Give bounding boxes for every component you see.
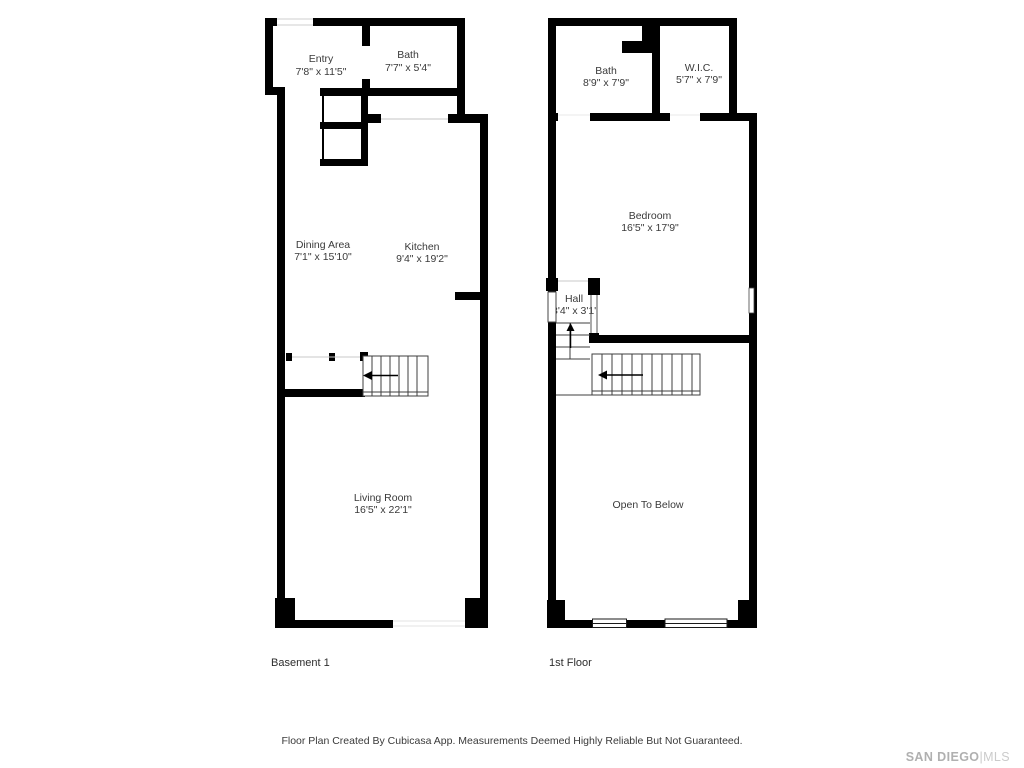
first-floor-stairs <box>556 323 700 395</box>
basement-walls <box>265 18 488 628</box>
svg-text:Dining Area: Dining Area <box>296 239 350 251</box>
svg-text:16'5" x 22'1": 16'5" x 22'1" <box>354 504 412 516</box>
svg-text:Living Room: Living Room <box>354 492 413 504</box>
room-label-bath-first-floor: Bath 8'9" x 7'9" <box>583 65 629 89</box>
mls-logo: SAN DIEGO|MLS <box>906 750 1010 764</box>
svg-text:Hall: Hall <box>565 293 583 305</box>
svg-text:9'4" x 19'2": 9'4" x 19'2" <box>396 253 448 265</box>
svg-text:W.I.C.: W.I.C. <box>685 62 714 74</box>
basement-plan: Entry 7'8" x 11'5" Bath 7'7" x 5'4" Dini… <box>265 18 488 628</box>
svg-text:8'9" x 7'9": 8'9" x 7'9" <box>583 77 629 89</box>
floor-label-first-floor: 1st Floor <box>549 657 592 669</box>
room-label-kitchen: Kitchen 9'4" x 19'2" <box>396 241 448 265</box>
svg-text:7'8" x 11'5": 7'8" x 11'5" <box>296 66 347 78</box>
svg-text:Bath: Bath <box>397 49 419 61</box>
floor-plan-canvas: Hall 3'4" x 3'1" <box>0 0 1024 768</box>
mls-logo-primary: SAN DIEGO <box>906 750 980 764</box>
svg-text:Bedroom: Bedroom <box>629 210 672 222</box>
svg-text:5'7" x 7'9": 5'7" x 7'9" <box>676 74 722 86</box>
disclaimer-text: Floor Plan Created By Cubicasa App. Meas… <box>0 735 1024 747</box>
floor-plan-page: Hall 3'4" x 3'1" <box>0 0 1024 768</box>
mls-logo-secondary: MLS <box>983 750 1010 764</box>
svg-text:Entry: Entry <box>309 53 334 65</box>
svg-text:Bath: Bath <box>595 65 617 77</box>
floor-label-basement: Basement 1 <box>271 657 330 669</box>
svg-text:16'5" x 17'9": 16'5" x 17'9" <box>621 222 679 234</box>
room-label-wic: W.I.C. 5'7" x 7'9" <box>676 62 722 86</box>
room-label-open-to-below: Open To Below <box>612 499 683 511</box>
svg-text:Open To Below: Open To Below <box>612 499 683 511</box>
room-label-entry: Entry 7'8" x 11'5" <box>296 53 347 78</box>
room-label-dining-area: Dining Area 7'1" x 15'10" <box>294 239 352 263</box>
room-label-living-room: Living Room 16'5" x 22'1" <box>354 492 413 516</box>
first-floor-plan: Bath 8'9" x 7'9" W.I.C. 5'7" x 7'9" Bedr… <box>546 18 757 628</box>
room-label-bath-basement: Bath 7'7" x 5'4" <box>385 49 431 74</box>
svg-text:7'7" x 5'4": 7'7" x 5'4" <box>385 62 431 74</box>
basement-windows <box>277 19 465 626</box>
svg-text:7'1" x 15'10": 7'1" x 15'10" <box>294 251 352 263</box>
room-label-bedroom: Bedroom 16'5" x 17'9" <box>621 210 679 234</box>
svg-text:Kitchen: Kitchen <box>404 241 439 253</box>
